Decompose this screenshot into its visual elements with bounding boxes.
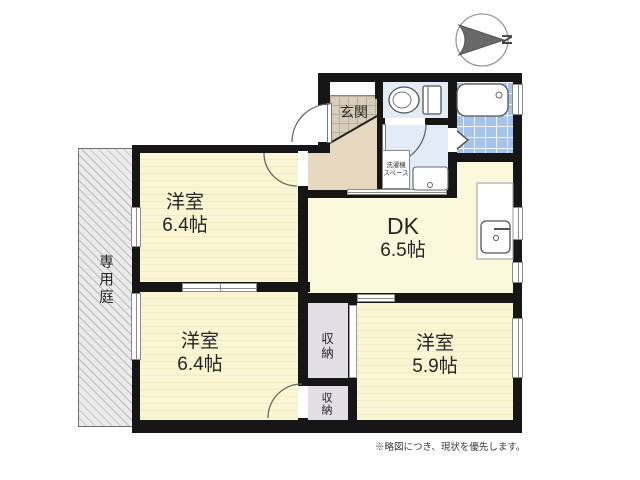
laundry-line2: スペース [383,170,408,178]
closet-lower-label: 収納 [318,388,334,420]
wall-segment [318,73,522,82]
wall-segment [448,153,522,162]
sliding-partition-bedrooms [182,283,257,292]
sliding-door-washroom-dk [347,189,447,195]
window-bathroom [512,84,523,115]
bedroom-top-left-label: 洋室 6.4帖 [130,191,240,237]
toilet-floor [383,82,448,118]
floor-plan: 洋室 6.4帖 洋室 6.4帖 DK 6.5帖 洋室 5.9帖 玄関 収納 収納… [0,0,640,480]
room-name: 洋室 [130,191,240,214]
bedroom-right-label: 洋室 5.9帖 [380,332,490,378]
laundry-line1: 洗濯機 [383,162,408,170]
window-bedroom-bottom-left [131,293,141,360]
footnote-text: ※略図につき、現状を優先します。 [375,439,535,453]
entrance-label: 玄関 [332,102,376,122]
toilet-doorway [385,118,425,125]
closet-upper-label: 収納 [317,324,336,368]
hall-floor [330,82,377,95]
wall-segment [318,73,330,105]
room-size: 6.5帖 [348,239,458,262]
closet-upper-door [349,305,357,378]
room-size: 5.9帖 [380,355,490,378]
room-size: 6.4帖 [130,214,240,237]
bathroom-floor [452,82,513,153]
room-size: 6.4帖 [145,353,255,376]
dining-kitchen-label: DK 6.5帖 [348,214,458,262]
compass-north-letter: N [498,34,515,45]
bedroom-top-doorway [298,151,308,186]
wall-segment [513,73,522,433]
window-dk-lower [512,262,523,283]
private-garden-label: 専用庭 [95,248,116,312]
laundry-space-box: 洗濯機 スペース [382,150,410,189]
wall-segment [375,73,383,99]
bathroom-doorway [448,128,457,152]
room-name: DK [348,214,458,239]
room-name: 洋室 [380,332,490,355]
wall-segment [298,293,522,303]
laundry-space-label: 洗濯機 スペース [383,162,408,178]
doorway-dk-bedroom-right [357,294,395,302]
closet-lower-doorway [298,386,308,418]
window-dk-upper [512,207,523,240]
wall-segment [132,420,522,433]
window-bedroom-right [512,318,523,378]
bedroom-bottom-left-label: 洋室 6.4帖 [145,330,255,376]
room-name: 洋室 [145,330,255,353]
